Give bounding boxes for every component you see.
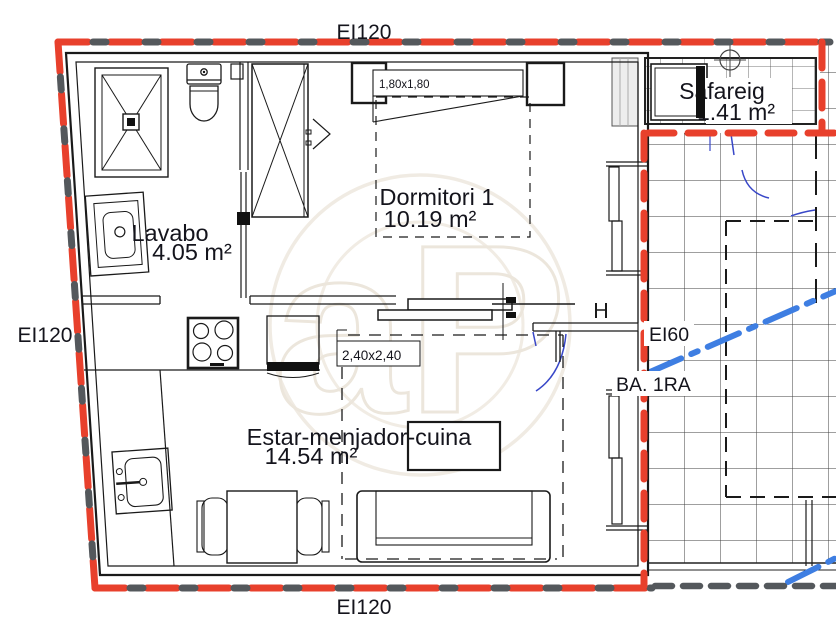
dining-table xyxy=(227,491,297,563)
room-area-dormitori: 10.19 m² xyxy=(384,206,477,232)
ei120-label-top: EI120 xyxy=(337,21,392,44)
bed-dimension-label: 1,80x1,80 xyxy=(379,79,430,91)
room-area-safareig: 1.41 m² xyxy=(697,99,775,125)
room-area-estar: 14.54 m² xyxy=(265,443,358,469)
zone-dimension-label: 2,40x2,40 xyxy=(342,348,401,363)
axis-label: BA. 1RA xyxy=(616,374,691,396)
floor-plan: aP xyxy=(0,0,836,634)
duct-shaft xyxy=(612,58,638,126)
sofa-icon xyxy=(357,491,550,562)
washing-machine-door-bar xyxy=(696,66,705,118)
ei120-label-bottom: EI120 xyxy=(337,596,392,619)
room-area-lavabo: 4.05 m² xyxy=(152,239,232,265)
ei120-label-left: EI120 xyxy=(18,324,73,347)
ei60-label: EI60 xyxy=(649,324,689,346)
door-handle xyxy=(237,212,250,225)
